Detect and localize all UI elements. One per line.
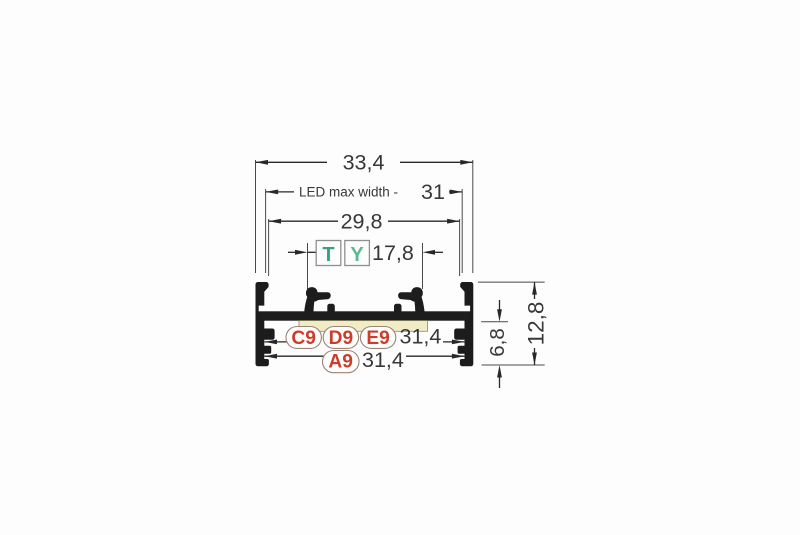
svg-text:29,8: 29,8 xyxy=(341,210,383,234)
svg-text:E9: E9 xyxy=(366,328,389,349)
svg-text:T: T xyxy=(322,244,334,266)
svg-text:C9: C9 xyxy=(291,328,316,349)
svg-text:6,8: 6,8 xyxy=(486,328,509,357)
svg-text:12,8: 12,8 xyxy=(524,302,549,346)
svg-text:31: 31 xyxy=(421,180,445,204)
svg-text:LED max width -: LED max width - xyxy=(299,185,398,200)
svg-text:33,4: 33,4 xyxy=(343,151,385,175)
svg-text:31,4: 31,4 xyxy=(362,348,404,372)
svg-text:17,8: 17,8 xyxy=(372,241,414,265)
svg-text:D9: D9 xyxy=(329,328,354,349)
svg-text:Y: Y xyxy=(350,244,364,266)
svg-text:A9: A9 xyxy=(328,351,353,372)
svg-text:31,4: 31,4 xyxy=(400,325,442,349)
